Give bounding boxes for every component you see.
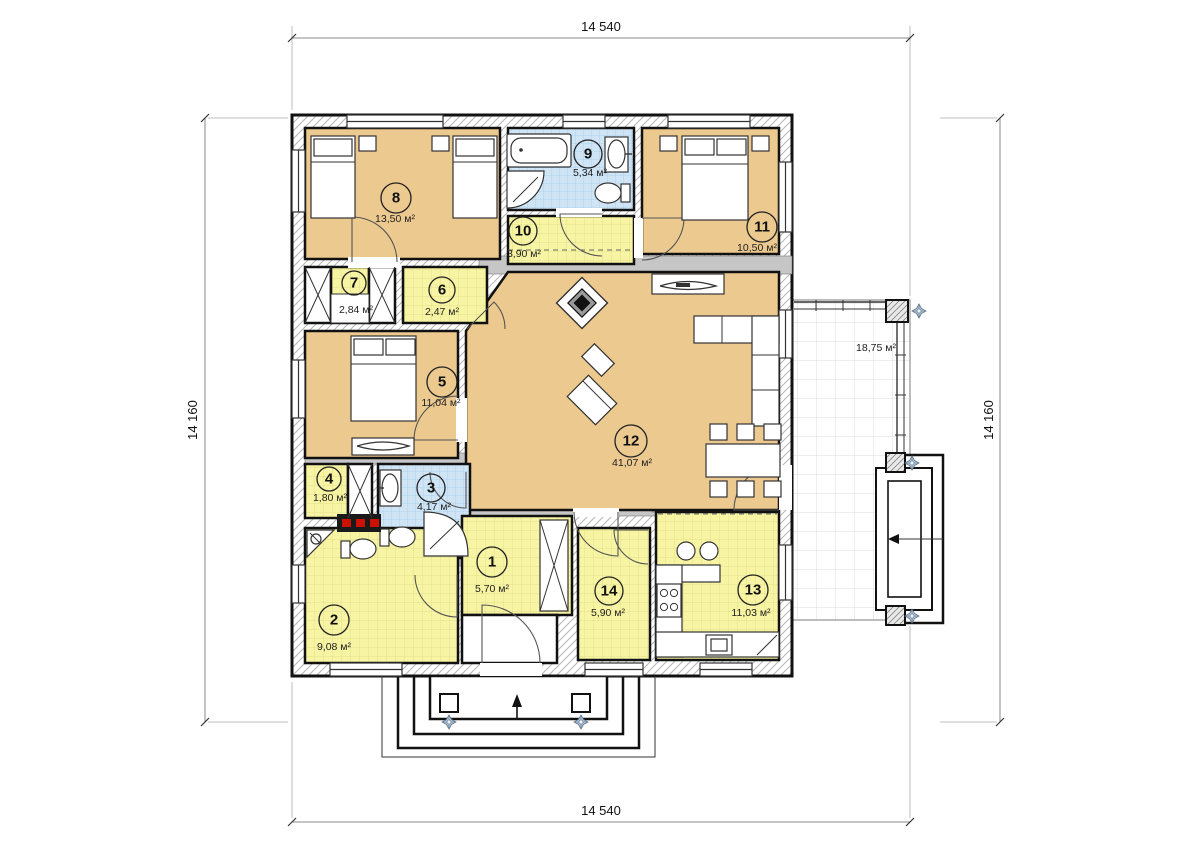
room-9-number: 9 [584,146,592,163]
sink-icon [378,470,401,506]
dining-set-icon [706,424,781,497]
room-14-area: 5,90 м² [591,607,626,619]
room-10-number: 10 [515,223,532,240]
room-11-area: 10,50 м² [737,242,777,254]
room-6-number: 6 [438,282,446,299]
terrace-area-label: 18,75 м² [856,342,896,354]
dimension-top: 14 540 [581,19,621,34]
tv-icon [652,274,724,294]
toilet-icon [380,527,415,547]
dimension-right: 14 160 [981,400,996,440]
terrace-steps [876,453,943,625]
dimension-left: 14 160 [185,400,200,440]
compass-icon [912,304,926,318]
room-9-area: 5,34 м² [573,167,608,179]
cooktop-icon [657,584,681,617]
room-6-area: 2,47 м² [425,306,460,318]
room-4-area: 1,80 м² [313,492,348,504]
floor-plan-canvas: 14 540 14 540 14 160 14 160 18, [0,0,1200,849]
room-11-number: 11 [754,219,770,236]
boiler-unit [337,514,381,532]
room-4-number: 4 [325,471,334,488]
entrance-door-opening [480,663,542,676]
wardrobe-icon [540,520,568,611]
toilet-icon [341,539,376,559]
room-8-area: 13,50 м² [375,213,415,225]
entrance-porch [382,676,655,757]
room-3-number: 3 [427,480,435,497]
room-13-number: 13 [745,582,762,599]
vestibule [462,615,557,663]
room-14-number: 14 [601,583,618,600]
room-8-number: 8 [392,190,400,207]
room-12-number: 12 [623,433,640,450]
toilet-icon [595,183,630,203]
room-13-area: 11,03 м² [731,607,771,619]
floor-plan-svg: 14 540 14 540 14 160 14 160 18, [0,0,1200,849]
room-3-area: 4,17 м² [417,501,452,513]
room-10-area: 3,90 м² [507,248,542,260]
room-2-area: 9,08 м² [317,641,352,653]
room-5-number: 5 [438,374,446,391]
room-1-area: 5,70 м² [475,583,510,595]
dimension-bottom: 14 540 [581,803,621,818]
room-12-area: 41,07 м² [612,457,652,469]
room-5-area: 11,04 м² [421,397,461,409]
room-2-number: 2 [330,612,338,629]
sink-icon [605,137,632,172]
terrace-column [886,300,908,322]
room-7-area: 2,84 м² [339,304,374,316]
bathtub-icon [507,134,571,167]
room-7-number: 7 [350,275,358,292]
room-1-number: 1 [488,554,496,571]
